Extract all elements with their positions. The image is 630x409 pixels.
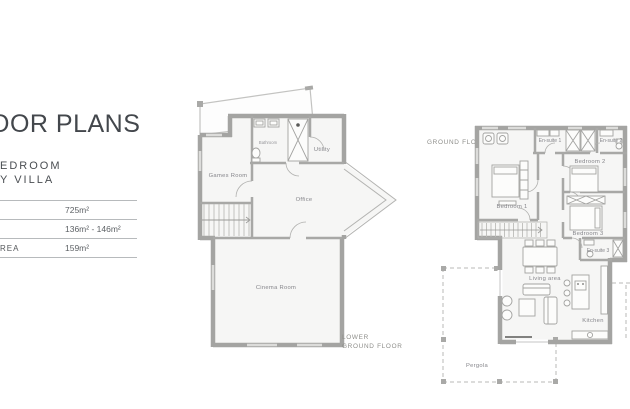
room-label-living: Living area (529, 276, 561, 282)
page-title: OOR PLANS (0, 112, 152, 137)
room-label-bedroom1: Bedroom 1 (496, 204, 527, 210)
patio-outline (612, 283, 630, 340)
floor-label-lower-line1: LOWER (342, 334, 369, 341)
spec-row: 725m² (0, 200, 137, 219)
floor-label-lower-line2: GROUND FLOOR (342, 343, 403, 350)
ground-floor-plan: GROUND FLOOR (420, 120, 630, 409)
room-label-utility: Utility (314, 147, 330, 153)
room-label-ensuite1: En-suite 1 (539, 138, 562, 144)
room-label-office: Office (296, 197, 313, 203)
spec-row: REA 159m² (0, 238, 137, 258)
room-label-kitchen: Kitchen (582, 318, 603, 324)
room-label-ensuite3: En-suite 3 (587, 248, 610, 254)
page-subtitle: EDROOM Y VILLA (0, 159, 152, 187)
room-label-bathroom: Bathroom (259, 140, 278, 145)
spec-value: 725m² (65, 205, 89, 215)
subtitle-line-1: EDROOM (0, 159, 152, 173)
subtitle-line-2: Y VILLA (0, 173, 152, 187)
page: { "panel": { "title": "OOR PLANS", "subt… (0, 0, 630, 409)
left-panel: OOR PLANS EDROOM Y VILLA 725m² 136m² - 1… (0, 0, 152, 258)
spec-value: 136m² - 146m² (65, 224, 121, 234)
room-label-bedroom3: Bedroom 3 (572, 231, 603, 237)
room-label-bedroom2: Bedroom 2 (574, 159, 605, 165)
room-label-ensuite2: En-suite 2 (600, 138, 623, 144)
lower-ground-floor-plan: Games Room Bathroom Utility Office Cinem… (192, 85, 437, 363)
spec-value: 159m² (65, 243, 89, 253)
spec-row: 136m² - 146m² (0, 219, 137, 238)
spec-table: 725m² 136m² - 146m² REA 159m² (0, 200, 137, 258)
room-label-games: Games Room (209, 173, 248, 179)
room-label-cinema: Cinema Room (256, 285, 296, 291)
spec-label: REA (0, 244, 65, 253)
room-label-pergola: Pergola (466, 363, 489, 369)
